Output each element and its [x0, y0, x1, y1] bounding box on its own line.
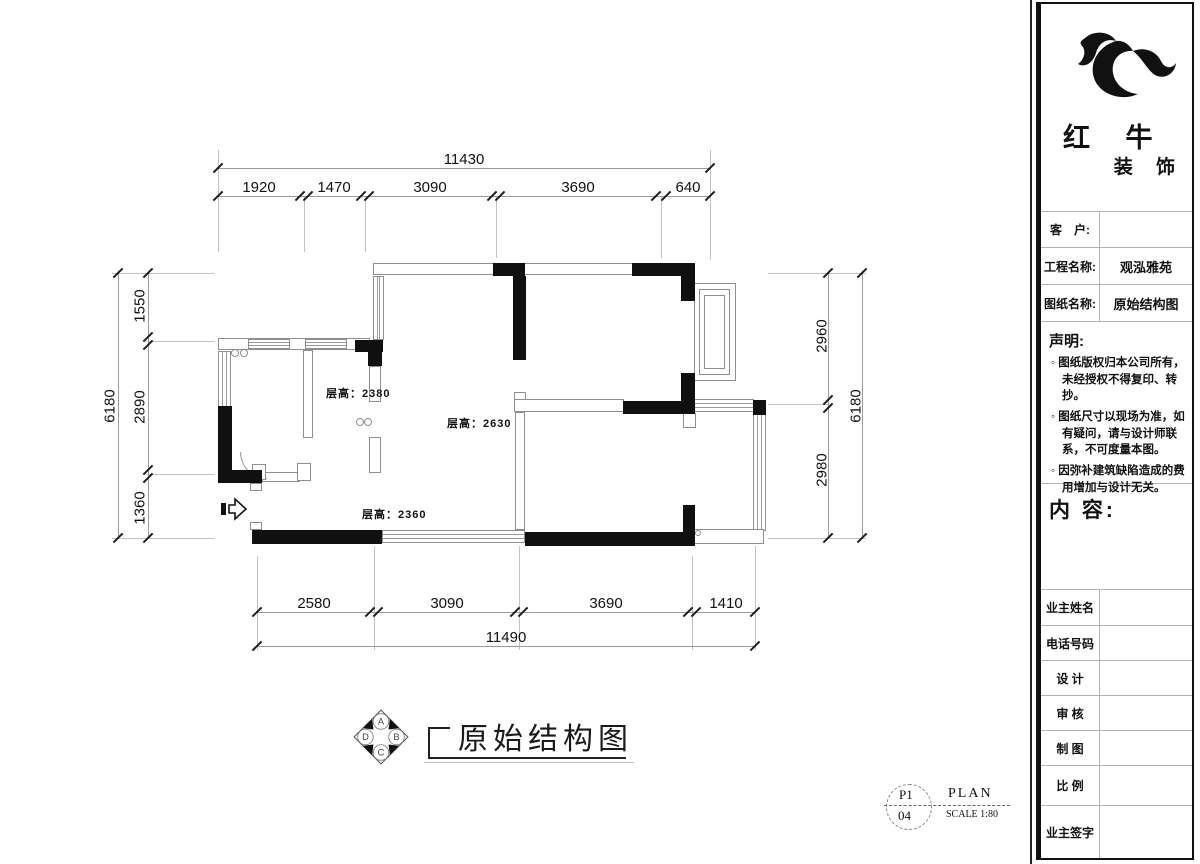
extension-line [304, 196, 305, 252]
phone-label: 电话号码 [1041, 626, 1100, 660]
statement-heading: 声明: [1049, 330, 1186, 351]
designer-label: 设 计 [1041, 661, 1100, 695]
dim-label: 1470 [317, 179, 350, 196]
dim-label: 2960 [814, 319, 831, 352]
wall-thin [514, 399, 624, 412]
dim-label: 2890 [132, 390, 149, 423]
wall-thin [373, 263, 494, 275]
dim-label: 2580 [297, 595, 330, 612]
dim-line-top-total [218, 168, 710, 169]
dim-label: 6180 [848, 389, 865, 422]
sheet-scale-label: SCALE 1:80 [946, 809, 998, 820]
sheet-number-bottom: 04 [898, 808, 911, 824]
statement-section: 声明: ◦ 图纸版权归本公司所有，未经授权不得复印、转抄。 ◦ 图纸尺寸以现场为… [1041, 322, 1192, 484]
title-underline-shadow [424, 762, 634, 763]
drawing-title: 原始结构图 [458, 714, 633, 758]
room-height-label: 层高：2380 [326, 385, 390, 401]
drawing-name-label: 图纸名称: [1041, 285, 1100, 321]
scale-row: 比 例 [1041, 766, 1192, 806]
extension-line [768, 404, 830, 405]
window-band [305, 339, 347, 349]
wall-thin [297, 463, 311, 481]
dim-label: 3690 [561, 179, 594, 196]
wall-thin [218, 338, 370, 350]
extension-line [257, 556, 258, 650]
brand-logo-section: 红 牛 装 饰 [1041, 4, 1192, 212]
content-heading: 内 容: [1049, 494, 1184, 524]
owner-name-row: 业主姓名 [1041, 590, 1192, 626]
owner-name-value [1100, 590, 1192, 625]
extension-line [755, 546, 756, 650]
wall-black [493, 263, 525, 276]
drafter-label: 制 图 [1041, 731, 1100, 765]
scale-label: 比 例 [1041, 766, 1100, 805]
extension-line [496, 196, 497, 258]
window-band [382, 530, 525, 543]
wall-black [218, 406, 232, 483]
room-height-label: 层高：2630 [447, 415, 511, 431]
dim-label: 3690 [589, 595, 622, 612]
dim-label: 2980 [814, 453, 831, 486]
dim-label: 3090 [413, 179, 446, 196]
extension-line [692, 556, 693, 650]
phone-row: 电话号码 [1041, 626, 1192, 661]
dim-line-bottom-segments [257, 612, 755, 613]
window-band [694, 399, 754, 412]
wall-thin [262, 472, 300, 482]
designer-row: 设 计 [1041, 661, 1192, 696]
statement-item: ◦ 图纸尺寸以现场为准，如有疑问，请与设计师联系，不可度量本图。 [1049, 409, 1186, 459]
door-jamb [250, 522, 262, 530]
hinge-dot [364, 418, 372, 426]
extension-line [365, 196, 366, 252]
extension-line [374, 546, 375, 650]
brand-subname: 装 饰 [1114, 152, 1184, 179]
dim-label: 11430 [444, 151, 485, 168]
wall-black [525, 532, 695, 546]
compass-letter: B [393, 732, 399, 742]
bull-logo-icon [1059, 28, 1179, 114]
wall-black [632, 263, 695, 276]
phone-value [1100, 626, 1192, 660]
wall-black [513, 276, 526, 360]
client-value [1100, 212, 1192, 247]
wall-thin [694, 529, 764, 544]
signature-label: 业主签字 [1041, 806, 1100, 858]
wall-thin [369, 437, 381, 473]
title-bracket [428, 727, 450, 729]
window-band [218, 351, 231, 407]
wall-black [681, 276, 695, 301]
compass-letter: C [378, 748, 385, 758]
window-band [373, 276, 384, 340]
title-underline [428, 757, 626, 759]
bay-window [704, 295, 725, 369]
drawing-name-value: 原始结构图 [1100, 285, 1192, 321]
drafter-value [1100, 731, 1192, 765]
statement-item: ◦ 图纸版权归本公司所有，未经授权不得复印、转抄。 [1049, 355, 1186, 405]
wall-black [252, 530, 382, 544]
dim-label: 1920 [242, 179, 275, 196]
project-name-label: 工程名称: [1041, 248, 1100, 284]
project-name-value: 观泓雅苑 [1100, 248, 1192, 284]
dim-label: 11490 [486, 629, 527, 646]
dim-label: 3090 [430, 595, 463, 612]
entry-arrow-icon [219, 492, 249, 526]
designer-value [1100, 661, 1192, 695]
door-jamb [683, 413, 696, 428]
sheet-type-label: PLAN [948, 786, 993, 802]
cad-sheet: 11430 1920 1470 3090 3690 640 2580 3090 … [0, 0, 1200, 864]
dim-line-bottom-total [257, 646, 755, 647]
drawing-name-row: 图纸名称: 原始结构图 [1041, 285, 1192, 322]
extension-line [661, 196, 662, 258]
dim-line-top-segments [218, 196, 710, 197]
window-band [248, 339, 290, 349]
extension-line [146, 341, 214, 342]
compass-letter: D [362, 732, 369, 742]
owner-name-label: 业主姓名 [1041, 590, 1100, 625]
wall-black [623, 401, 682, 414]
brand-name: 红 牛 [1063, 116, 1167, 155]
stamp-divider [884, 805, 1010, 806]
dim-label: 1410 [709, 595, 742, 612]
room-height-label: 层高：2360 [362, 506, 426, 522]
hinge-dot [356, 418, 364, 426]
wall-black [232, 470, 262, 483]
client-row: 客 户: [1041, 212, 1192, 248]
wall-thin [303, 350, 313, 438]
wall-thin [524, 263, 633, 275]
reviewer-label: 审 核 [1041, 696, 1100, 730]
extension-line [768, 273, 866, 274]
wall-black [681, 373, 695, 414]
dim-label: 1360 [132, 491, 149, 524]
compass-letter: A [378, 717, 385, 727]
title-block: 红 牛 装 饰 客 户: 工程名称: 观泓雅苑 图纸名称: 原始结构图 声明: … [1036, 2, 1194, 860]
client-label: 客 户: [1041, 212, 1100, 247]
drafter-row: 制 图 [1041, 731, 1192, 766]
extension-line [112, 273, 214, 274]
project-name-row: 工程名称: 观泓雅苑 [1041, 248, 1192, 285]
wall-black [753, 400, 766, 415]
hinge-dot [240, 349, 248, 357]
extension-line [112, 538, 214, 539]
sheet-divider-line [1030, 0, 1032, 864]
compass-icon: A B C D [352, 708, 410, 766]
signature-value [1100, 806, 1192, 858]
content-section: 内 容: [1041, 484, 1192, 590]
reviewer-value [1100, 696, 1192, 730]
dim-label: 640 [675, 179, 700, 196]
door-jamb [250, 483, 262, 491]
sheet-number-top: P1 [899, 787, 913, 803]
signature-row: 业主签字 [1041, 806, 1192, 858]
wall-thin [515, 412, 525, 530]
extension-line [768, 538, 866, 539]
hinge-dot [695, 530, 701, 536]
wall-black [368, 340, 382, 366]
dim-label: 6180 [102, 389, 119, 422]
reviewer-row: 审 核 [1041, 696, 1192, 731]
dim-label: 1550 [132, 289, 149, 322]
scale-value [1100, 766, 1192, 805]
title-bracket [428, 727, 430, 757]
extension-line [146, 474, 214, 475]
window-band [753, 414, 766, 531]
hinge-dot [231, 349, 239, 357]
